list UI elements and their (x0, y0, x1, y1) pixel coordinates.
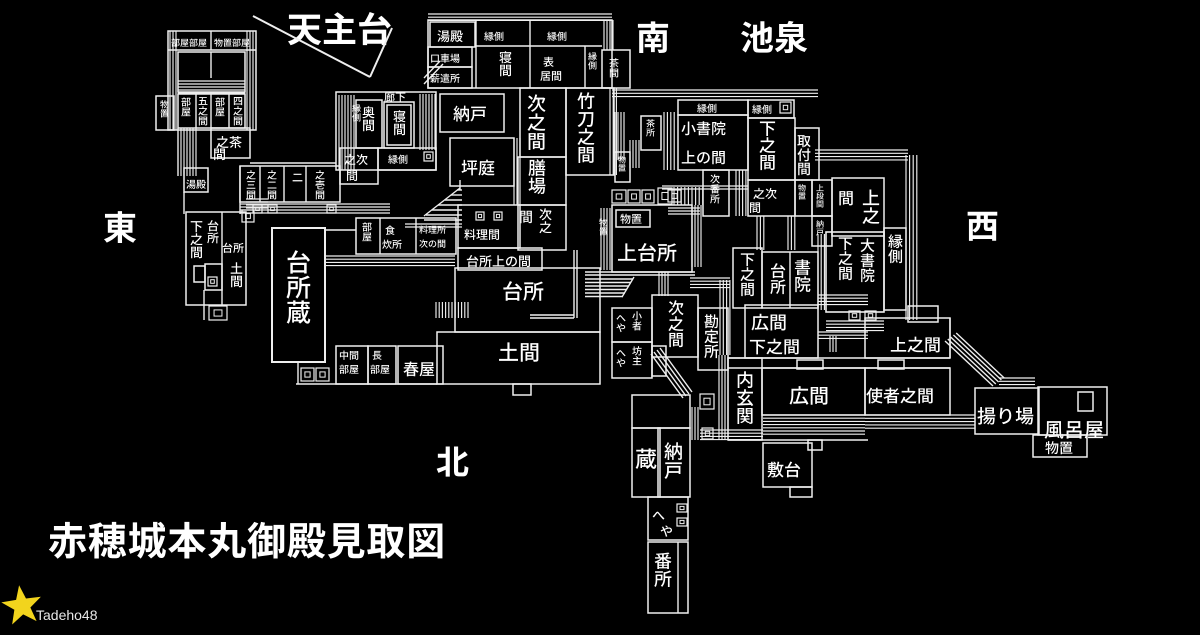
svg-text:Tadeho48: Tadeho48 (36, 607, 98, 623)
